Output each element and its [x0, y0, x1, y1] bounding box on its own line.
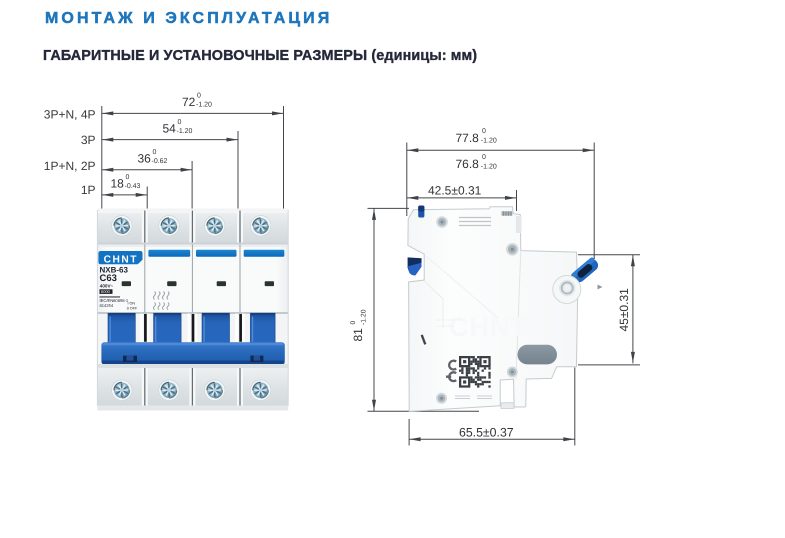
svg-text:0 OFF: 0 OFF: [127, 306, 138, 310]
svg-text:CHNT: CHNT: [104, 254, 138, 265]
svg-text:0: 0: [482, 128, 486, 135]
svg-text:814254: 814254: [100, 303, 114, 308]
svg-text:45±0.31: 45±0.31: [617, 288, 631, 332]
svg-text:-1.20: -1.20: [360, 309, 367, 325]
svg-text:81: 81: [351, 328, 365, 342]
svg-text:-1.20: -1.20: [481, 163, 497, 170]
svg-text:36: 36: [138, 152, 152, 166]
svg-text:400V~: 400V~: [100, 283, 114, 288]
svg-text:72: 72: [182, 95, 196, 109]
svg-text:18: 18: [111, 177, 125, 191]
svg-text:-1.20: -1.20: [481, 137, 497, 144]
svg-text:-1.20: -1.20: [177, 128, 193, 135]
svg-text:0: 0: [153, 149, 157, 156]
svg-text:3P: 3P: [81, 133, 96, 147]
svg-text:6000: 6000: [101, 289, 111, 294]
svg-text:65.5±0.37: 65.5±0.37: [459, 426, 514, 440]
svg-text:-0.43: -0.43: [125, 183, 141, 190]
svg-text:0: 0: [482, 154, 486, 161]
svg-text:76.8: 76.8: [456, 157, 480, 171]
svg-text:0: 0: [350, 321, 357, 325]
svg-text:-1.20: -1.20: [196, 102, 212, 109]
svg-text:0: 0: [197, 93, 201, 100]
svg-text:1P+N, 2P: 1P+N, 2P: [44, 159, 96, 173]
svg-text:0: 0: [178, 119, 182, 126]
svg-text:3P+N, 4P: 3P+N, 4P: [44, 107, 96, 121]
svg-text:CHNT: CHNT: [449, 312, 528, 342]
svg-text:C63: C63: [100, 273, 117, 284]
svg-text:-0.62: -0.62: [152, 158, 168, 165]
svg-text:54: 54: [163, 121, 177, 135]
svg-text:77.8: 77.8: [456, 131, 480, 145]
svg-text:42.5±0.31: 42.5±0.31: [428, 183, 482, 197]
svg-text:0: 0: [126, 174, 130, 181]
svg-text:1P: 1P: [81, 183, 96, 197]
svg-text:I ON: I ON: [128, 301, 136, 305]
